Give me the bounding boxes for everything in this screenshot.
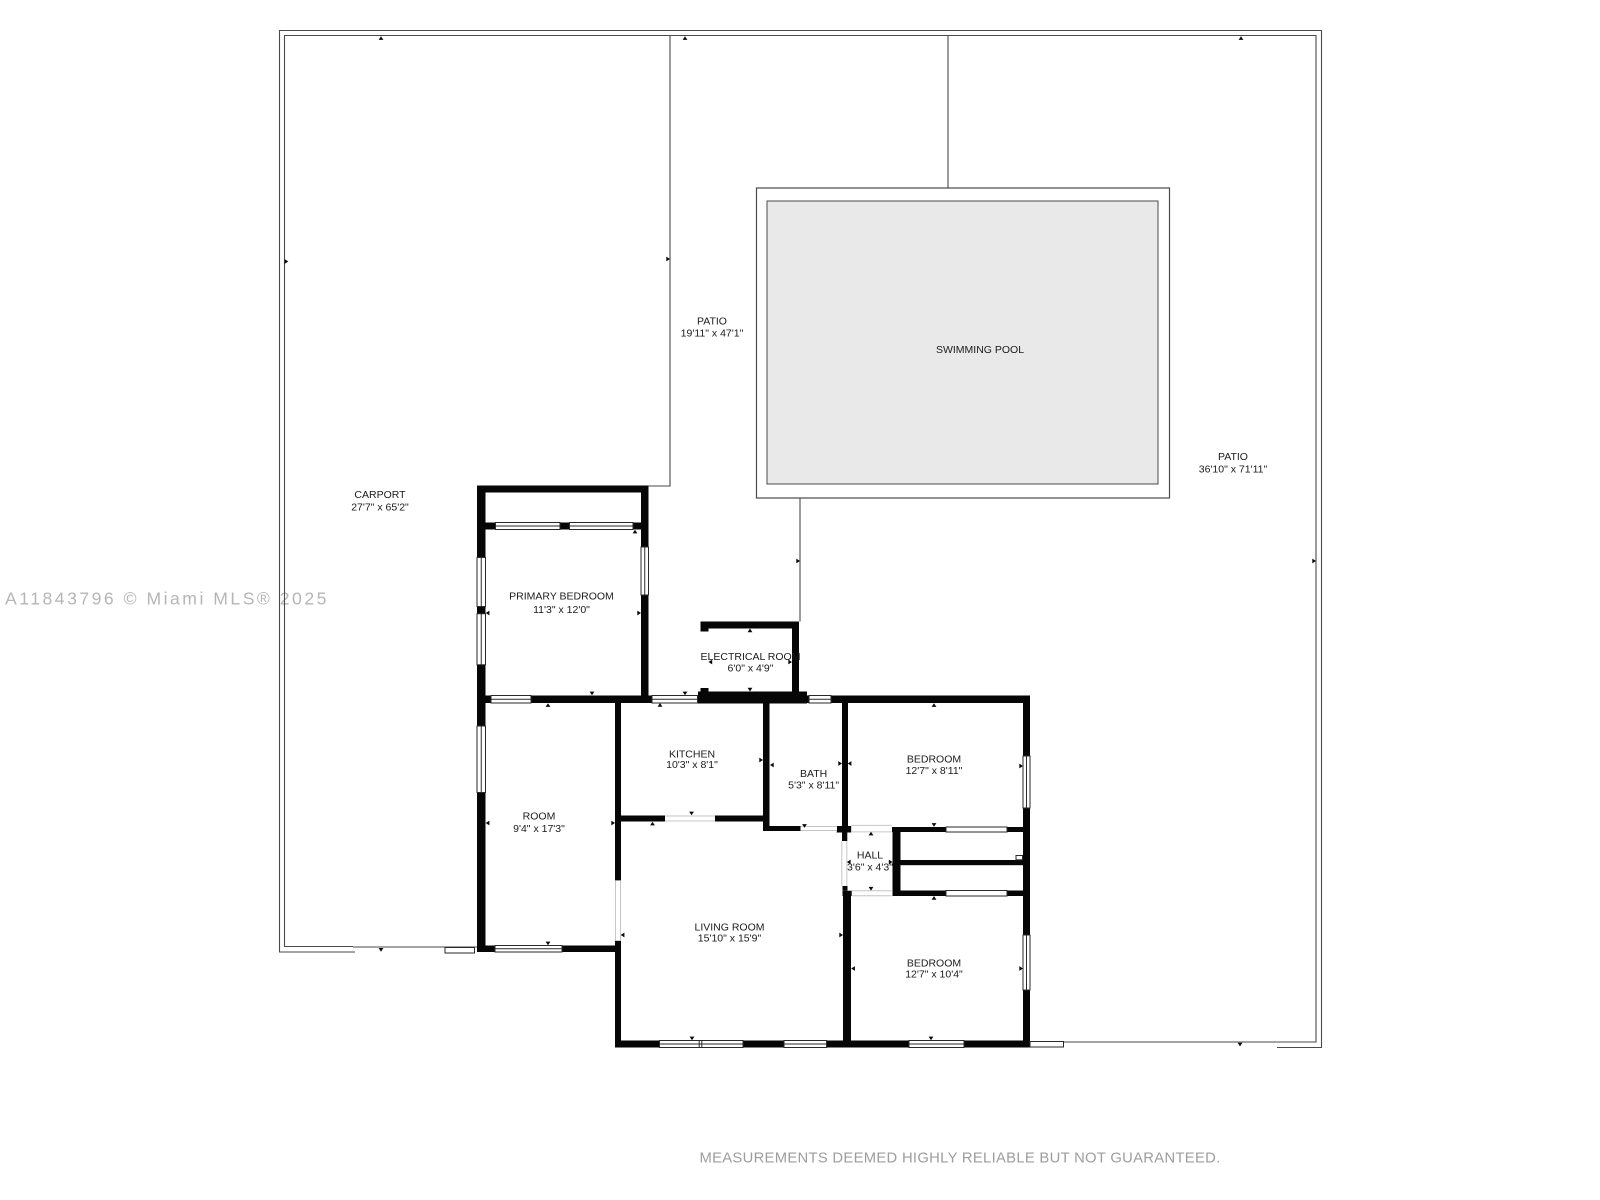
svg-text:36'10" x 71'11": 36'10" x 71'11": [1199, 463, 1268, 475]
svg-text:3'6" x 4'3": 3'6" x 4'3": [847, 862, 893, 874]
svg-text:6'0" x 4'9": 6'0" x 4'9": [728, 663, 774, 675]
svg-text:11'3" x 12'0": 11'3" x 12'0": [533, 604, 590, 616]
svg-text:CARPORT: CARPORT: [354, 489, 406, 501]
svg-text:PATIO: PATIO: [697, 316, 727, 328]
svg-text:12'7" x 8'11": 12'7" x 8'11": [906, 765, 963, 777]
svg-text:MEASUREMENTS DEEMED HIGHLY REL: MEASUREMENTS DEEMED HIGHLY RELIABLE BUT …: [699, 1151, 1220, 1167]
svg-text:ROOM: ROOM: [523, 810, 556, 822]
svg-text:15'10" x 15'9": 15'10" x 15'9": [698, 933, 762, 945]
svg-text:12'7" x 10'4": 12'7" x 10'4": [905, 968, 963, 980]
svg-text:10'3" x 8'1": 10'3" x 8'1": [666, 759, 718, 771]
svg-text:A11843796 © Miami MLS® 2025: A11843796 © Miami MLS® 2025: [5, 589, 329, 609]
svg-text:ELECTRICAL ROOM: ELECTRICAL ROOM: [701, 651, 801, 663]
svg-text:5'3" x 8'11": 5'3" x 8'11": [788, 780, 839, 792]
svg-text:PATIO: PATIO: [1218, 451, 1248, 463]
svg-text:HALL: HALL: [857, 849, 883, 861]
svg-text:9'4" x 17'3": 9'4" x 17'3": [513, 823, 565, 835]
svg-text:BATH: BATH: [800, 768, 827, 780]
svg-text:19'11" x 47'1": 19'11" x 47'1": [681, 327, 744, 339]
svg-text:PRIMARY BEDROOM: PRIMARY BEDROOM: [509, 591, 614, 603]
svg-text:27'7" x 65'2": 27'7" x 65'2": [351, 501, 409, 513]
svg-text:SWIMMING POOL: SWIMMING POOL: [936, 344, 1024, 356]
svg-text:BEDROOM: BEDROOM: [907, 753, 961, 765]
